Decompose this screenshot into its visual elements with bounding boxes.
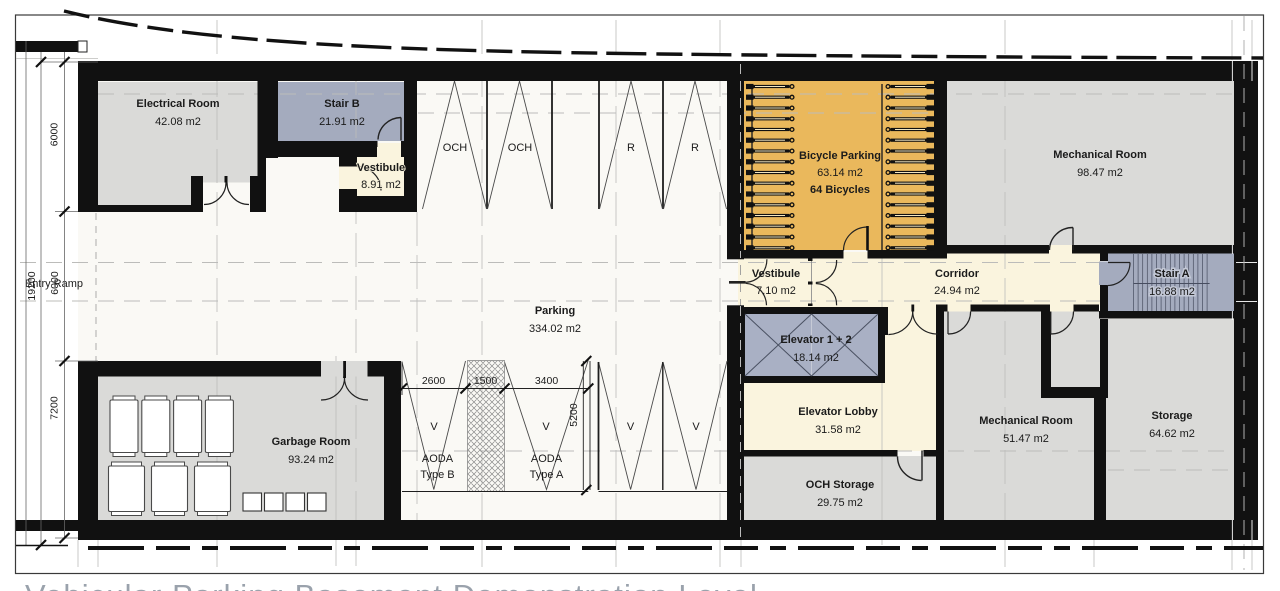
svg-text:Storage: Storage — [1152, 410, 1193, 422]
svg-text:AODA: AODA — [422, 453, 454, 465]
svg-text:8.91 m2: 8.91 m2 — [361, 179, 401, 191]
svg-text:Mechanical Room: Mechanical Room — [1053, 149, 1147, 161]
svg-text:24.94 m2: 24.94 m2 — [934, 285, 980, 297]
svg-text:6000: 6000 — [49, 123, 61, 147]
svg-text:Electrical Room: Electrical Room — [136, 98, 219, 110]
svg-text:29.75 m2: 29.75 m2 — [817, 497, 863, 509]
svg-text:Mechanical Room: Mechanical Room — [979, 415, 1073, 427]
svg-text:7.10 m2: 7.10 m2 — [756, 285, 796, 297]
svg-text:Stair A: Stair A — [1154, 268, 1189, 280]
svg-text:OCH: OCH — [443, 142, 468, 154]
svg-text:R: R — [627, 142, 635, 154]
svg-text:V: V — [692, 421, 700, 433]
svg-text:3400: 3400 — [535, 375, 559, 387]
svg-text:2600: 2600 — [422, 375, 446, 387]
svg-text:98.47 m2: 98.47 m2 — [1077, 167, 1123, 179]
svg-text:Vehicular Parking Basement Dem: Vehicular Parking Basement Demonstration… — [25, 578, 758, 591]
svg-text:R: R — [691, 142, 699, 154]
svg-text:Vestibule: Vestibule — [752, 268, 800, 280]
svg-text:16.88 m2: 16.88 m2 — [1149, 286, 1195, 298]
svg-text:Bicycle Parking: Bicycle Parking — [799, 150, 881, 162]
svg-text:Entry Ramp: Entry Ramp — [25, 278, 83, 290]
svg-text:Corridor: Corridor — [935, 268, 980, 280]
svg-text:OCH: OCH — [508, 142, 533, 154]
svg-text:93.24 m2: 93.24 m2 — [288, 454, 334, 466]
svg-text:Elevator Lobby: Elevator Lobby — [798, 406, 878, 418]
svg-text:AODA: AODA — [531, 453, 563, 465]
svg-text:Type B: Type B — [420, 469, 454, 481]
svg-text:Garbage Room: Garbage Room — [272, 436, 351, 448]
svg-text:5200: 5200 — [568, 403, 580, 427]
svg-text:Vestibule: Vestibule — [357, 162, 405, 174]
svg-text:OCH Storage: OCH Storage — [806, 479, 874, 491]
svg-text:V: V — [542, 421, 550, 433]
svg-text:31.58 m2: 31.58 m2 — [815, 424, 861, 436]
svg-text:V: V — [430, 421, 438, 433]
svg-text:334.02 m2: 334.02 m2 — [529, 323, 581, 335]
svg-text:Elevator 1 + 2: Elevator 1 + 2 — [780, 334, 851, 346]
svg-text:V: V — [627, 421, 635, 433]
svg-text:51.47 m2: 51.47 m2 — [1003, 433, 1049, 445]
svg-text:21.91 m2: 21.91 m2 — [319, 116, 365, 128]
svg-text:63.14 m2: 63.14 m2 — [817, 167, 863, 179]
svg-text:Type A: Type A — [530, 469, 564, 481]
svg-text:18.14 m2: 18.14 m2 — [793, 352, 839, 364]
svg-text:42.08 m2: 42.08 m2 — [155, 116, 201, 128]
svg-text:Stair B: Stair B — [324, 98, 360, 110]
svg-text:7200: 7200 — [49, 396, 61, 420]
svg-text:64.62 m2: 64.62 m2 — [1149, 428, 1195, 440]
svg-text:64 Bicycles: 64 Bicycles — [810, 184, 870, 196]
svg-text:Parking: Parking — [535, 305, 575, 317]
svg-text:1500: 1500 — [474, 375, 498, 387]
